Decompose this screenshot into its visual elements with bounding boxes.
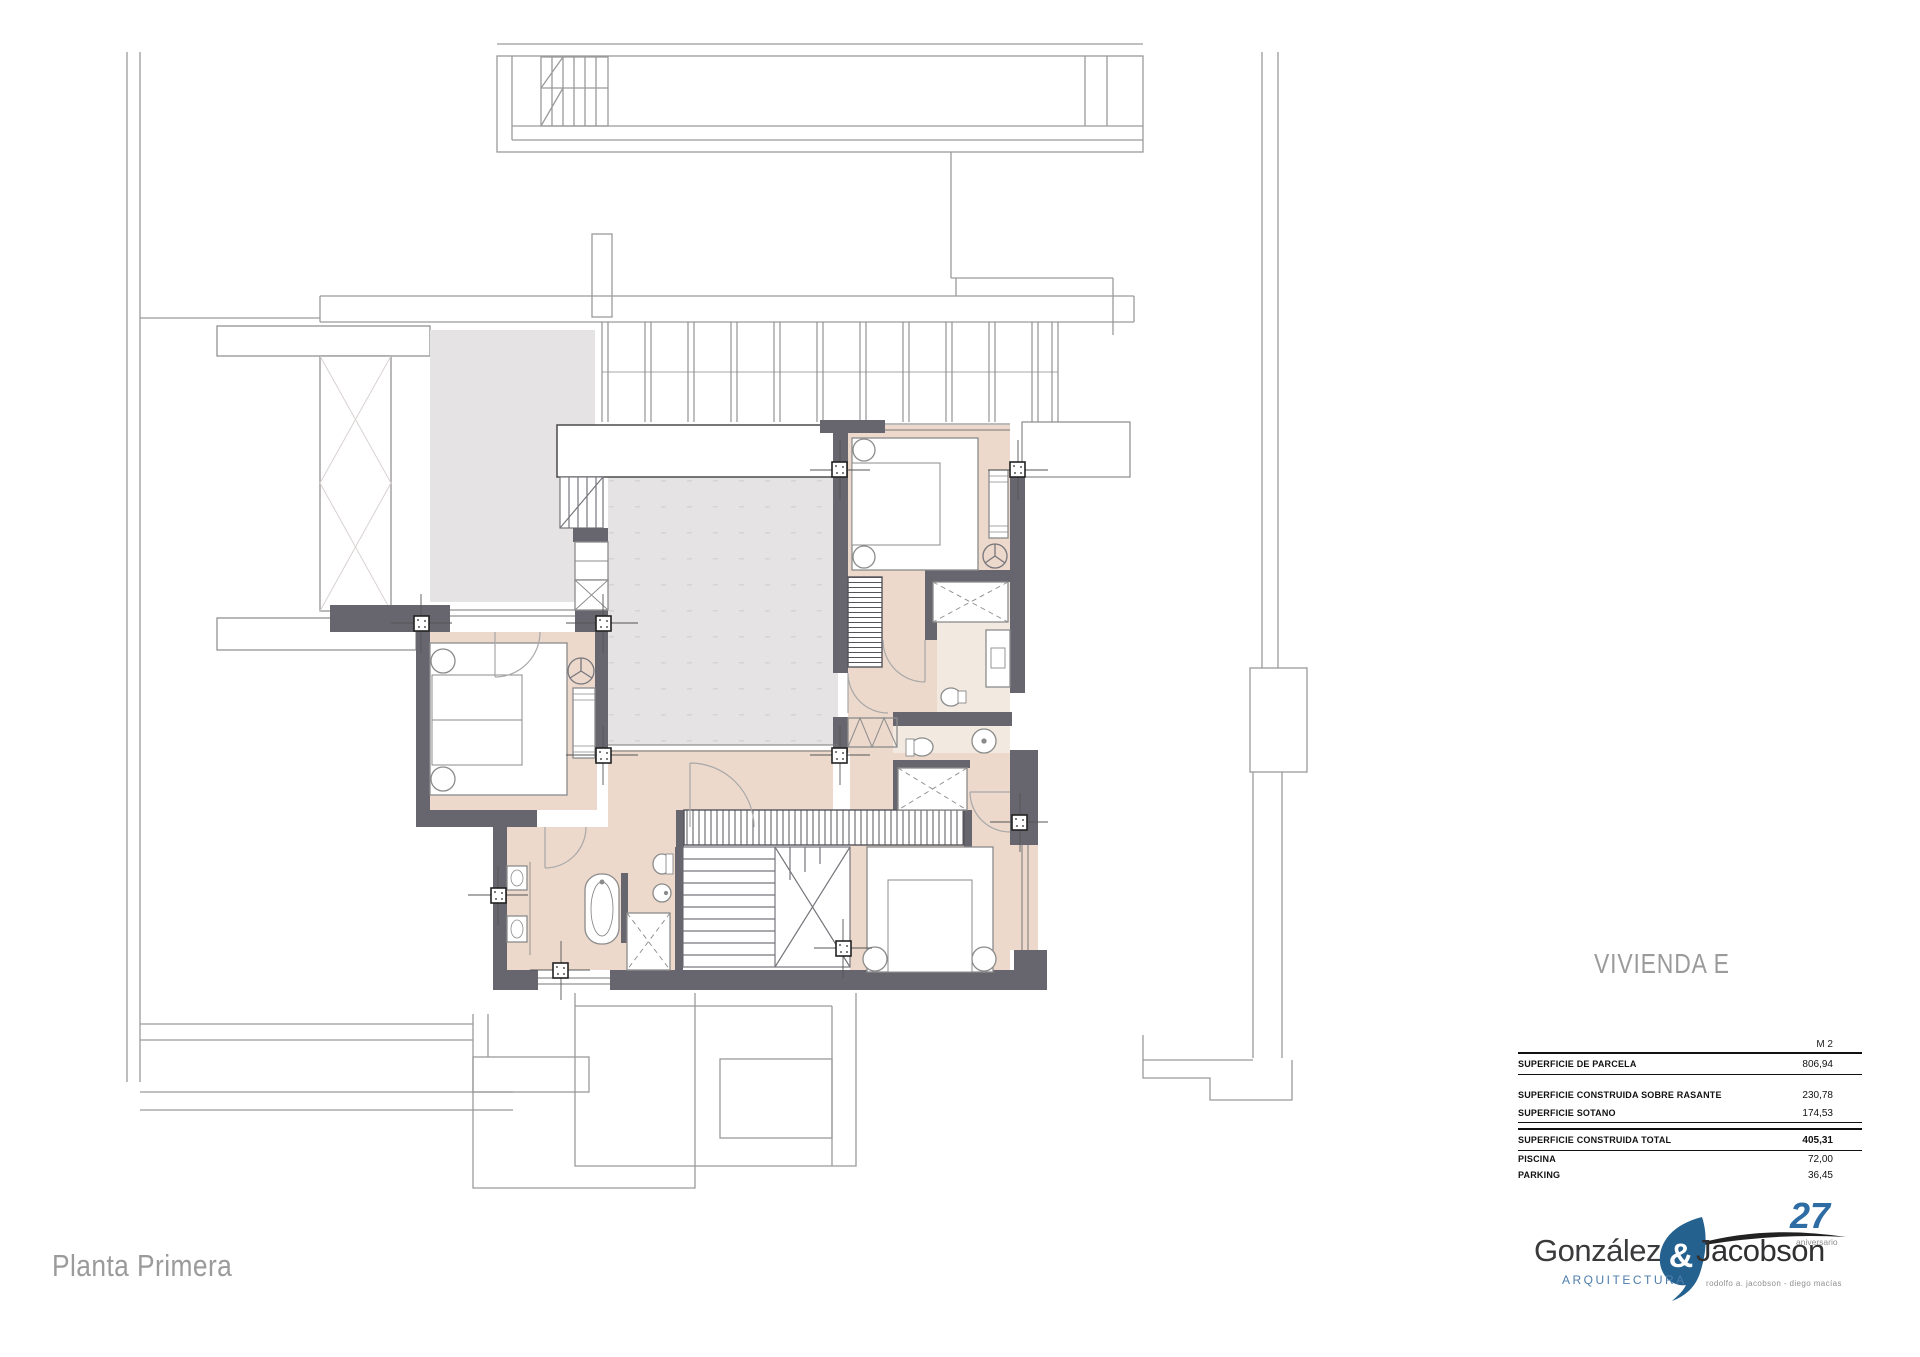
sink-icon — [972, 729, 996, 753]
sink-icon — [986, 630, 1010, 687]
table-row: SUPERFICIE DE PARCELA 806,94 — [1518, 1052, 1862, 1075]
architect-logo: 27 aniversario González & Jacobson ARQUI… — [1528, 1193, 1868, 1313]
floor-label: Planta Primera — [52, 1248, 232, 1284]
table-row: PARKING 36,45 — [1518, 1167, 1862, 1183]
table-row: PISCINA 72,00 — [1518, 1151, 1862, 1167]
shower-icon — [933, 582, 1008, 622]
wardrobe-icon — [848, 577, 882, 667]
area-table: M 2 SUPERFICIE DE PARCELA 806,94 SUPERFI… — [1518, 1036, 1862, 1183]
logo-subtitle: ARQUITECTURA — [1562, 1273, 1687, 1287]
logo-name-left: González — [1534, 1233, 1661, 1269]
bed-icon — [852, 438, 978, 570]
shower-icon — [627, 913, 670, 970]
table-row: SUPERFICIE CONSTRUIDA TOTAL 405,31 — [1518, 1130, 1862, 1151]
logo-tagline: rodolfo a. jacobson - diego macías — [1706, 1279, 1842, 1288]
upper-stair-icon — [560, 477, 603, 528]
bed-icon — [430, 643, 567, 795]
toilet-icon — [906, 738, 933, 756]
window-icon — [450, 610, 575, 616]
unit-header: M 2 — [1723, 1039, 1862, 1050]
terrace-slab-right — [1022, 422, 1130, 477]
main-stair-icon — [683, 847, 850, 967]
double-height-void — [608, 477, 838, 745]
logo-name-right: Jacobson — [1696, 1233, 1825, 1269]
toilet-icon — [941, 688, 966, 706]
bench-icon — [989, 470, 1008, 538]
pergola-icon — [602, 322, 1058, 422]
table-row: SUPERFICIE CONSTRUIDA SOBRE RASANTE 230,… — [1518, 1086, 1862, 1104]
page-title: VIVIENDA E — [1594, 948, 1807, 980]
roof-hatch-icon — [541, 57, 608, 126]
void-top-slab — [557, 425, 838, 477]
bed-icon — [863, 847, 996, 972]
plan-sheet: VIVIENDA E Planta Primera M 2 SUPERFICIE… — [0, 0, 1920, 1357]
svg-text:&: & — [1669, 1237, 1694, 1275]
bidet-icon — [653, 884, 671, 902]
porch-column — [320, 356, 391, 611]
bench-icon — [573, 688, 595, 758]
table-row: SUPERFICIE SOTANO 174,53 — [1518, 1104, 1862, 1123]
toilet-icon — [653, 854, 673, 874]
shower-icon — [898, 768, 967, 810]
table-header-row: M 2 — [1518, 1036, 1862, 1052]
wardrobe-icon — [684, 810, 964, 845]
window-icon — [538, 978, 610, 984]
bathtub-icon — [585, 874, 619, 944]
